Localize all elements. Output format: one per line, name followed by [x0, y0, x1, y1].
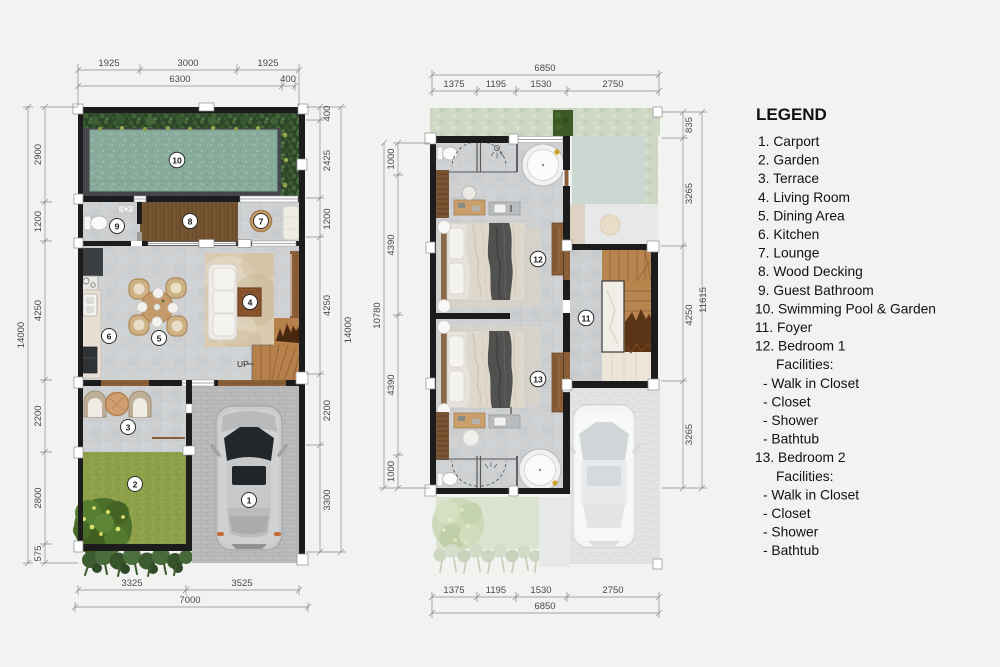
svg-text:1925: 1925 [98, 58, 119, 69]
svg-text:- Walk in Closet: - Walk in Closet [763, 376, 859, 391]
svg-text:- Closet: - Closet [763, 394, 811, 409]
svg-text:Facilities:: Facilities: [776, 469, 834, 484]
svg-text:6: 6 [107, 331, 112, 341]
svg-text:- Walk in Closet: - Walk in Closet [763, 487, 859, 502]
svg-text:2900: 2900 [33, 144, 44, 165]
svg-text:1530: 1530 [530, 79, 551, 90]
svg-text:4250: 4250 [322, 295, 333, 316]
svg-text:8: 8 [188, 216, 193, 226]
svg-text:2200: 2200 [322, 400, 333, 421]
svg-text:3265: 3265 [684, 424, 695, 445]
svg-text:835: 835 [684, 117, 695, 133]
svg-text:4: 4 [248, 297, 253, 307]
svg-text:2800: 2800 [33, 487, 44, 508]
svg-text:- Bathtub: - Bathtub [763, 432, 819, 447]
svg-text:5: 5 [157, 333, 162, 343]
svg-text:4. Living Room: 4. Living Room [758, 190, 850, 205]
svg-text:12. Bedroom 1: 12. Bedroom 1 [755, 339, 846, 354]
svg-text:1000: 1000 [386, 461, 397, 482]
svg-text:4390: 4390 [386, 374, 397, 395]
svg-text:2: 2 [133, 479, 138, 489]
svg-text:3. Terrace: 3. Terrace [758, 171, 819, 186]
svg-text:3265: 3265 [684, 183, 695, 204]
svg-text:11615: 11615 [698, 287, 709, 313]
svg-text:2. Garden: 2. Garden [758, 153, 819, 168]
svg-text:2750: 2750 [602, 79, 623, 90]
svg-text:1375: 1375 [443, 79, 464, 90]
svg-text:Facilities:: Facilities: [776, 357, 834, 372]
svg-text:400: 400 [322, 106, 333, 122]
svg-text:7: 7 [259, 216, 264, 226]
svg-text:1200: 1200 [33, 211, 44, 232]
svg-text:11. Foyer: 11. Foyer [755, 320, 813, 335]
svg-text:6850: 6850 [534, 601, 555, 612]
svg-text:3525: 3525 [231, 578, 252, 589]
svg-text:9. Guest Bathroom: 9. Guest Bathroom [758, 283, 874, 298]
svg-text:1375: 1375 [443, 585, 464, 596]
svg-text:10780: 10780 [372, 302, 383, 328]
svg-text:- Bathtub: - Bathtub [763, 543, 819, 558]
svg-text:1195: 1195 [486, 585, 506, 596]
svg-text:- Closet: - Closet [763, 506, 811, 521]
svg-text:400: 400 [280, 74, 296, 85]
svg-text:UP: UP [237, 359, 249, 369]
svg-text:6. Kitchen: 6. Kitchen [758, 227, 819, 242]
svg-text:1000: 1000 [386, 148, 397, 169]
svg-text:11: 11 [581, 313, 590, 323]
svg-text:3: 3 [126, 422, 131, 432]
svg-text:7000: 7000 [179, 595, 200, 606]
svg-text:13: 13 [533, 374, 543, 384]
svg-text:12: 12 [533, 254, 543, 264]
svg-text:14000: 14000 [16, 322, 27, 348]
svg-text:10: 10 [172, 155, 182, 165]
svg-text:9: 9 [115, 221, 120, 231]
svg-text:2750: 2750 [602, 585, 623, 596]
svg-text:1: 1 [247, 495, 252, 505]
svg-text:1. Carport: 1. Carport [758, 134, 820, 149]
svg-text:3000: 3000 [177, 58, 198, 69]
svg-text:- Shower: - Shower [763, 525, 819, 540]
svg-text:- Shower: - Shower [763, 413, 819, 428]
svg-text:1925: 1925 [257, 58, 278, 69]
svg-text:4250: 4250 [684, 304, 695, 325]
svg-text:1195: 1195 [486, 79, 506, 90]
svg-text:8. Wood Decking: 8. Wood Decking [758, 264, 863, 279]
svg-text:7. Lounge: 7. Lounge [758, 246, 820, 261]
svg-text:2200: 2200 [33, 405, 44, 426]
svg-text:6300: 6300 [169, 74, 190, 85]
svg-text:10. Swimming Pool & Garden: 10. Swimming Pool & Garden [755, 301, 936, 316]
svg-text:2425: 2425 [322, 150, 333, 171]
svg-text:575: 575 [33, 546, 44, 562]
svg-text:1200: 1200 [322, 208, 333, 229]
svg-text:4390: 4390 [386, 234, 397, 255]
svg-text:13. Bedroom 2: 13. Bedroom 2 [755, 450, 846, 465]
svg-text:4250: 4250 [33, 300, 44, 321]
svg-text:LEGEND: LEGEND [756, 105, 827, 124]
svg-text:5. Dining Area: 5. Dining Area [758, 208, 845, 223]
svg-text:1530: 1530 [530, 585, 551, 596]
svg-text:3325: 3325 [121, 578, 142, 589]
svg-text:14000: 14000 [343, 317, 354, 343]
svg-text:3300: 3300 [322, 489, 333, 510]
svg-text:6850: 6850 [534, 63, 555, 74]
